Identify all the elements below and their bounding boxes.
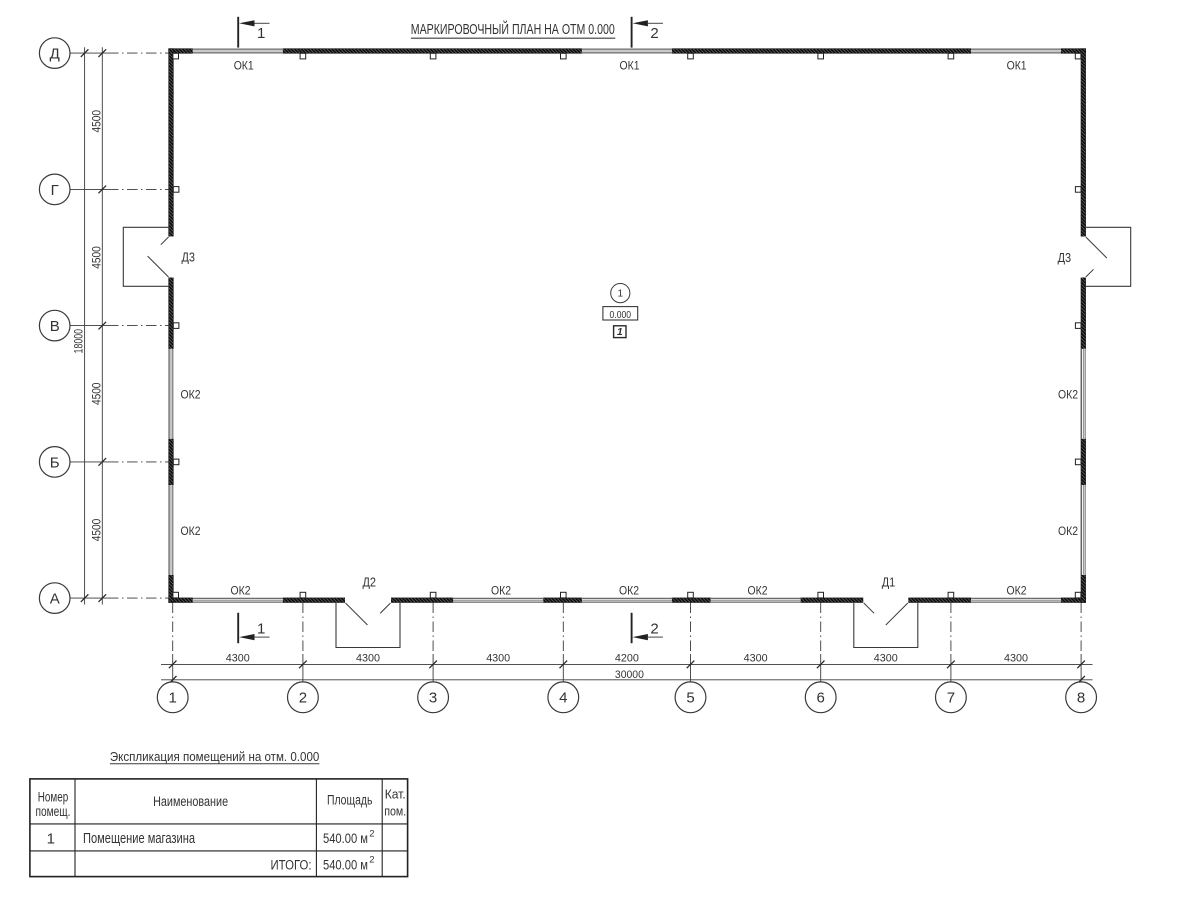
svg-text:Площадь: Площадь bbox=[327, 793, 373, 808]
svg-text:540.00 м: 540.00 м bbox=[323, 856, 368, 872]
svg-text:4500: 4500 bbox=[90, 110, 104, 133]
svg-text:8: 8 bbox=[1077, 690, 1085, 707]
svg-text:1: 1 bbox=[47, 830, 55, 847]
svg-text:4300: 4300 bbox=[226, 652, 250, 664]
svg-text:6: 6 bbox=[817, 690, 825, 707]
svg-text:4500: 4500 bbox=[89, 246, 103, 269]
svg-text:Д3: Д3 bbox=[1058, 251, 1072, 265]
svg-text:4: 4 bbox=[559, 690, 567, 707]
svg-text:1: 1 bbox=[169, 690, 177, 707]
svg-text:помещ.: помещ. bbox=[36, 804, 71, 819]
svg-text:Д3: Д3 bbox=[181, 251, 195, 265]
svg-text:4300: 4300 bbox=[486, 652, 510, 664]
svg-text:ИТОГО:: ИТОГО: bbox=[271, 857, 312, 872]
svg-text:ОК2: ОК2 bbox=[748, 584, 768, 598]
svg-text:ОК2: ОК2 bbox=[1007, 584, 1027, 598]
svg-text:4300: 4300 bbox=[874, 652, 898, 664]
svg-text:Б: Б bbox=[50, 454, 60, 471]
svg-text:ОК1: ОК1 bbox=[1007, 59, 1027, 73]
svg-text:2: 2 bbox=[650, 25, 658, 42]
svg-text:1: 1 bbox=[257, 25, 265, 42]
svg-text:4200: 4200 bbox=[615, 652, 639, 664]
svg-text:ОК2: ОК2 bbox=[181, 524, 201, 538]
svg-text:Помещение магазина: Помещение магазина bbox=[83, 831, 196, 847]
svg-text:4300: 4300 bbox=[356, 652, 380, 664]
svg-text:540.00 м: 540.00 м bbox=[323, 830, 368, 846]
svg-text:2: 2 bbox=[299, 690, 307, 707]
svg-text:3: 3 bbox=[429, 690, 437, 707]
svg-text:0.000: 0.000 bbox=[610, 309, 632, 321]
svg-text:ОК2: ОК2 bbox=[619, 584, 639, 598]
svg-text:4500: 4500 bbox=[89, 518, 103, 541]
svg-text:Г: Г bbox=[51, 182, 59, 199]
svg-text:МАРКИРОВОЧНЫЙ ПЛАН НА ОТМ 0.00: МАРКИРОВОЧНЫЙ ПЛАН НА ОТМ 0.000 bbox=[411, 20, 615, 38]
svg-text:18000: 18000 bbox=[71, 329, 85, 354]
svg-text:1: 1 bbox=[617, 326, 623, 338]
svg-text:Кат.: Кат. bbox=[385, 787, 406, 801]
svg-text:2: 2 bbox=[369, 854, 374, 865]
svg-text:ОК2: ОК2 bbox=[181, 388, 201, 402]
svg-text:пом.: пом. bbox=[384, 804, 406, 818]
svg-text:А: А bbox=[50, 591, 60, 608]
svg-text:30000: 30000 bbox=[615, 669, 644, 681]
svg-text:Д1: Д1 bbox=[882, 576, 896, 590]
svg-text:Экспликация помещений на отм.: Экспликация помещений на отм. 0.000 bbox=[110, 749, 320, 764]
svg-text:ОК2: ОК2 bbox=[1058, 388, 1078, 402]
svg-text:ОК1: ОК1 bbox=[620, 59, 640, 73]
svg-text:2: 2 bbox=[650, 620, 658, 637]
svg-text:ОК2: ОК2 bbox=[491, 584, 511, 598]
svg-text:Д2: Д2 bbox=[362, 576, 376, 590]
svg-text:2: 2 bbox=[369, 828, 374, 839]
svg-text:4500: 4500 bbox=[89, 382, 103, 405]
svg-text:Номер: Номер bbox=[38, 789, 69, 804]
svg-text:Д: Д bbox=[50, 46, 60, 63]
svg-text:Наименование: Наименование bbox=[153, 794, 228, 809]
svg-text:В: В bbox=[50, 318, 60, 335]
svg-text:4300: 4300 bbox=[744, 652, 768, 664]
svg-text:ОК1: ОК1 bbox=[234, 59, 254, 73]
svg-text:4300: 4300 bbox=[1004, 652, 1028, 664]
svg-text:1: 1 bbox=[618, 289, 624, 300]
svg-text:ОК2: ОК2 bbox=[231, 584, 251, 598]
svg-text:7: 7 bbox=[947, 690, 955, 707]
svg-text:ОК2: ОК2 bbox=[1058, 524, 1078, 538]
svg-text:5: 5 bbox=[686, 690, 694, 707]
svg-text:1: 1 bbox=[257, 620, 265, 637]
